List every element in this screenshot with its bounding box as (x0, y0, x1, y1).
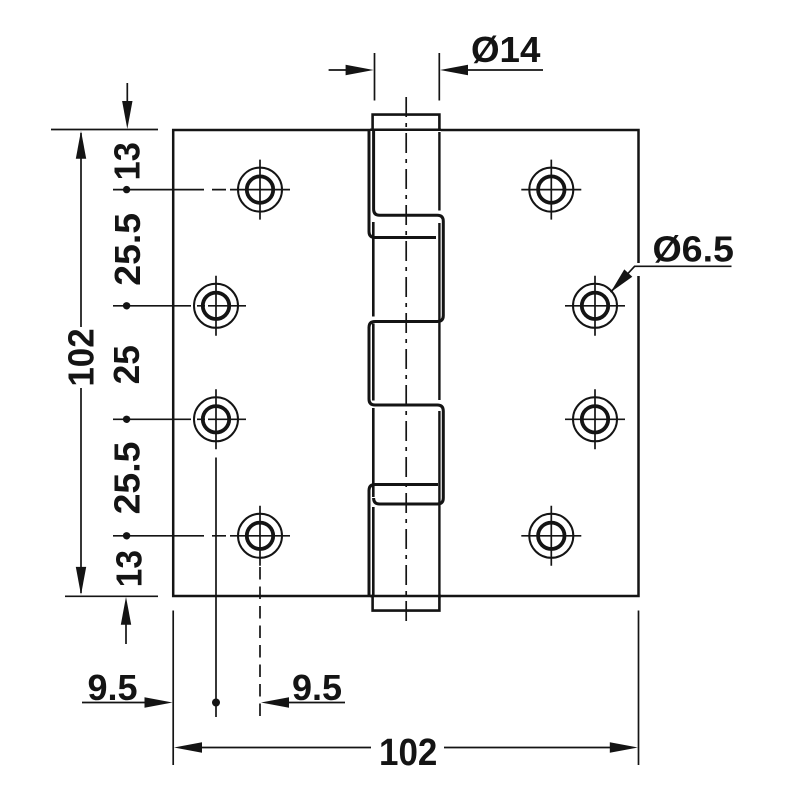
svg-text:13: 13 (108, 142, 148, 180)
svg-text:102: 102 (379, 731, 437, 774)
svg-text:13: 13 (110, 550, 149, 587)
svg-text:Ø6.5: Ø6.5 (652, 229, 734, 269)
svg-text:9.5: 9.5 (292, 667, 342, 708)
svg-text:Ø14: Ø14 (471, 30, 541, 71)
svg-text:25: 25 (107, 345, 147, 384)
svg-text:9.5: 9.5 (87, 667, 137, 708)
svg-text:25.5: 25.5 (108, 213, 148, 286)
svg-text:102: 102 (61, 328, 102, 386)
svg-text:25.5: 25.5 (107, 442, 147, 515)
